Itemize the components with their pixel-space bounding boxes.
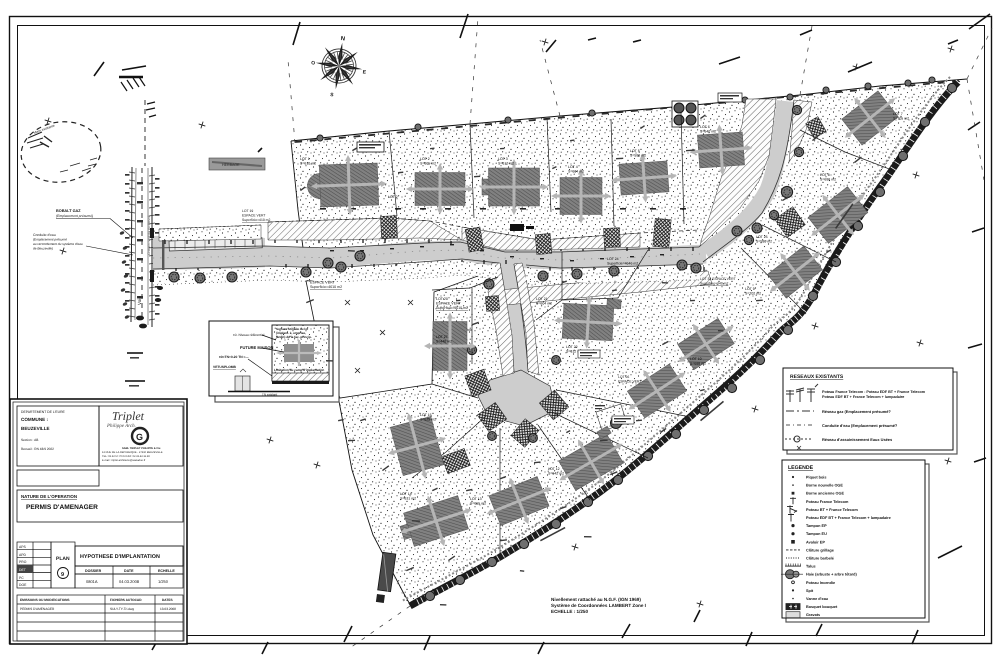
svg-text:DET: DET [19,568,26,572]
svg-text:S=631 m2: S=631 m2 [400,496,416,500]
svg-text:ECHELLE: ECHELLE [158,569,175,573]
svg-text:S=605 m2: S=605 m2 [420,161,436,165]
svg-text:Nivellement rattaché au N.G.F.: Nivellement rattaché au N.G.F. (IGN 1969… [551,597,641,602]
svg-text:Limitation du camp d'implantat: Limitation du camp d'implantation [274,368,324,372]
svg-text:9: 9 [61,572,64,578]
svg-text:LOT 12: LOT 12 [548,467,560,471]
svg-text:LOT 22: LOT 22 [566,345,578,349]
svg-text:BEUZEVILLE: BEUZEVILLE [21,426,50,431]
svg-text:PRO: PRO [19,560,27,564]
svg-text:S=698 m2: S=698 m2 [820,177,836,181]
svg-text:Poteau France Telecom - Pote: Poteau France Telecom - Poteau EDF BT + … [822,390,926,394]
svg-text:TN existant: TN existant [262,393,277,397]
svg-text:LOT 27: LOT 27 [436,335,448,339]
svg-text:SULY-TY-Tri.dwg: SULY-TY-Tri.dwg [110,607,134,611]
svg-text:Poteau EDF BT + France Telecom: Poteau EDF BT + France Telecom + lampada… [822,395,904,399]
svg-text:Vanne d'eau: Vanne d'eau [806,597,829,601]
svg-text:ECHELLE : 1/250: ECHELLE : 1/250 [551,609,588,614]
svg-text:DATE: DATE [124,569,134,573]
svg-text:S=625 m2: S=625 m2 [420,417,436,421]
svg-text:DOE: DOE [19,583,27,587]
svg-text:1/250: 1/250 [158,579,169,584]
svg-text:LOT 5: LOT 5 [630,149,640,153]
svg-text:LOT 4: LOT 4 [568,165,578,169]
svg-text:Réseau gaz (Emplacement prés: Réseau gaz (Emplacement présumé? [822,409,891,414]
svg-text:S=640 m2: S=640 m2 [700,129,716,133]
svg-text:HYPOTHESE D'IMPLANTATION: HYPOTHESE D'IMPLANTATION [80,554,160,560]
svg-text:Superficie=4610 m2: Superficie=4610 m2 [310,285,342,289]
svg-text:Conduite d'eau: Conduite d'eau [33,233,56,237]
svg-text:LOT 33 ESPACE VERT: LOT 33 ESPACE VERT [700,277,736,281]
svg-text:LOT 7: LOT 7 [893,112,903,116]
svg-text:S=705 m2: S=705 m2 [893,116,909,120]
svg-text:Système de Coordonnées LAMBERT: Système de Coordonnées LAMBERT Zone I [551,603,646,608]
svg-text:S=604 m2: S=604 m2 [536,301,552,305]
svg-text:Gravats: Gravats [806,613,820,617]
svg-text:LOT 3: LOT 3 [498,157,508,161]
svg-text:S=688 m2: S=688 m2 [690,361,706,365]
svg-text:DATES: DATES [162,598,173,602]
svg-text:LOT 9: LOT 9 [745,287,755,291]
svg-text:LOT 24: LOT 24 [607,257,619,261]
svg-text:LOT 19: LOT 19 [242,209,253,213]
svg-text:0801A: 0801A [86,579,98,584]
svg-text:S=655 m2: S=655 m2 [470,501,486,505]
svg-text:LOT 13: LOT 13 [470,497,482,501]
svg-text:Voie: Voie [137,296,142,305]
svg-text:Superficie=4646 m2: Superficie=4646 m2 [607,261,638,265]
svg-text:LOT 25: LOT 25 [756,235,768,239]
svg-text:S=604 m2: S=604 m2 [568,169,584,173]
svg-text:Tampon EP: Tampon EP [806,524,827,528]
svg-text:LOT 2: LOT 2 [388,195,398,199]
svg-text:Haie (arbuste + arbre têtard): Haie (arbuste + arbre têtard) [806,573,857,577]
svg-text:BOBALT GAZ: BOBALT GAZ [56,209,81,213]
svg-text:PC: PC [19,576,24,580]
svg-text:HERBAGE: HERBAGE [222,163,240,167]
svg-text:Superficie=340 m2: Superficie=340 m2 [700,282,728,286]
svg-text:S=642 m2: S=642 m2 [548,471,564,475]
svg-text:G: G [136,432,143,442]
svg-text:ESPACE VERT: ESPACE VERT [242,214,265,218]
svg-text:LOT 10: LOT 10 [690,357,702,361]
svg-text:TEL: 02.32.57.70.03 FAX: 02.3: TEL: 02.32.57.70.03 FAX: 02.32.42.11.28 [102,455,150,458]
svg-text:de Beuzeville): de Beuzeville) [33,247,53,251]
svg-text:S=440 m2: S=440 m2 [436,339,452,343]
svg-text:S=590 m2: S=590 m2 [756,239,772,243]
svg-text:Superficie=410 m2: Superficie=410 m2 [242,218,270,222]
svg-text:Piquet bois: Piquet bois [806,476,826,480]
svg-text:Borne ancienne OGE: Borne ancienne OGE [806,492,844,496]
svg-text:au raccordement du système d'e: au raccordement du système d'eau [33,242,83,246]
svg-text:±0=TN+0.20 TN ≈---: ±0=TN+0.20 TN ≈--- [219,355,249,359]
svg-text:Clôture grillage: Clôture grillage [806,548,834,552]
svg-text:Section : AB: Section : AB [21,438,38,442]
svg-text:DOSSIER: DOSSIER [85,569,102,573]
svg-text:APS: APS [19,545,27,549]
svg-text:RESEAUX EXISTANTS: RESEAUX EXISTANTS [790,374,844,380]
svg-text:S=612 m2: S=612 m2 [498,161,514,165]
svg-text:NATURE DE L'OPERATION: NATURE DE L'OPERATION [21,494,77,499]
svg-text:Poteau Incendie: Poteau Incendie [806,581,835,585]
svg-text:Philippe Arch.: Philippe Arch. [106,423,136,429]
svg-text:S=702 m2: S=702 m2 [745,291,761,295]
svg-text:Poteau BT + France Telecom: Poteau BT + France Telecom [806,508,858,512]
svg-text:Clôture barbelé: Clôture barbelé [806,557,834,561]
svg-text:PERMIS D'AMENAGER: PERMIS D'AMENAGER [20,607,55,611]
svg-text:EMISSIONS OU MODIFICATIONS: EMISSIONS OU MODIFICATIONS [20,598,70,602]
svg-text:Triplet: Triplet [112,409,145,423]
svg-text:S=610 m2: S=610 m2 [300,161,316,165]
svg-text:SARL TRIPLET PHILIPPE & Cie: SARL TRIPLET PHILIPPE & Cie [122,447,161,450]
svg-text:LOT 2: LOT 2 [420,157,430,161]
svg-text:FICHIERS AUTOCAD: FICHIERS AUTOCAD [110,598,142,602]
svg-text:ESPACE VERT: ESPACE VERT [310,281,336,285]
svg-text:Réseau d'assainissement Eaux U: Réseau d'assainissement Eaux Usées [822,437,892,442]
svg-text:Borne nouvelle OGE: Borne nouvelle OGE [806,484,843,488]
svg-text:Tampon EU: Tampon EU [806,532,827,536]
svg-text:Poteau France Telecom: Poteau France Telecom [806,500,849,504]
svg-text:04.03.2008: 04.03.2008 [119,579,140,584]
svg-text:LOT 15: LOT 15 [420,413,432,417]
svg-text:S=598 m2: S=598 m2 [630,153,646,157]
svg-text:LOT 8: LOT 8 [820,173,830,177]
svg-text:12 RUE DE LA REPUBLIQUE - 2721: 12 RUE DE LA REPUBLIQUE - 27210 BEUZEVIL… [102,451,163,454]
svg-text:LOT 21: LOT 21 [536,297,548,301]
svg-text:Bosquet bouquet: Bosquet bouquet [806,605,838,609]
svg-text:LOT 1: LOT 1 [300,157,310,161]
svg-text:±0. Niveau référentiel: ±0. Niveau référentiel [233,333,265,337]
svg-text:Spit: Spit [806,589,814,593]
svg-text:VETUSPLOMB: VETUSPLOMB [213,365,237,369]
svg-text:DEPARTEMENT DE L'EURE: DEPARTEMENT DE L'EURE [21,410,66,414]
svg-text:LOT 6: LOT 6 [700,125,710,129]
svg-text:Superficie=4610 m2: Superficie=4610 m2 [436,306,468,310]
svg-text:COMMUNE :: COMMUNE : [21,417,49,422]
svg-text:(Emplacement présumé: (Emplacement présumé [33,238,67,242]
svg-text:Talus: Talus [806,565,816,569]
svg-text:Avaloir EP: Avaloir EP [806,540,825,544]
svg-text:PERMIS D'AMENAGER: PERMIS D'AMENAGER [26,504,98,511]
svg-text:13.03.2008: 13.03.2008 [160,607,176,611]
svg-text:Recueil : RN 43/9 2022: Recueil : RN 43/9 2022 [21,447,54,451]
svg-text:LOT 26: LOT 26 [618,375,629,379]
svg-text:E-mail : triplet.architecte@wa: E-mail : triplet.architecte@wanadoo.fr [102,459,145,462]
svg-text:ESPACE VERT: ESPACE VERT [618,380,641,384]
svg-text:Conduite d'eau (Emplacement p: Conduite d'eau (Emplacement présumé? [822,423,898,428]
svg-text:ESPACE VERT: ESPACE VERT [436,302,462,306]
svg-text:APD: APD [19,553,27,557]
svg-text:jardin) de la faç. princip.: jardin) de la faç. princip. [275,335,312,339]
svg-text:(Emplacement présumé): (Emplacement présumé) [56,214,93,218]
svg-text:LEGENDE: LEGENDE [788,465,814,471]
svg-text:Poteau EDF BT + France Telecom: Poteau EDF BT + France Telecom + lampada… [806,516,891,520]
svg-text:LOT 14: LOT 14 [400,492,412,496]
svg-text:LOT 20: LOT 20 [436,297,448,301]
svg-text:PLAN: PLAN [56,556,70,562]
